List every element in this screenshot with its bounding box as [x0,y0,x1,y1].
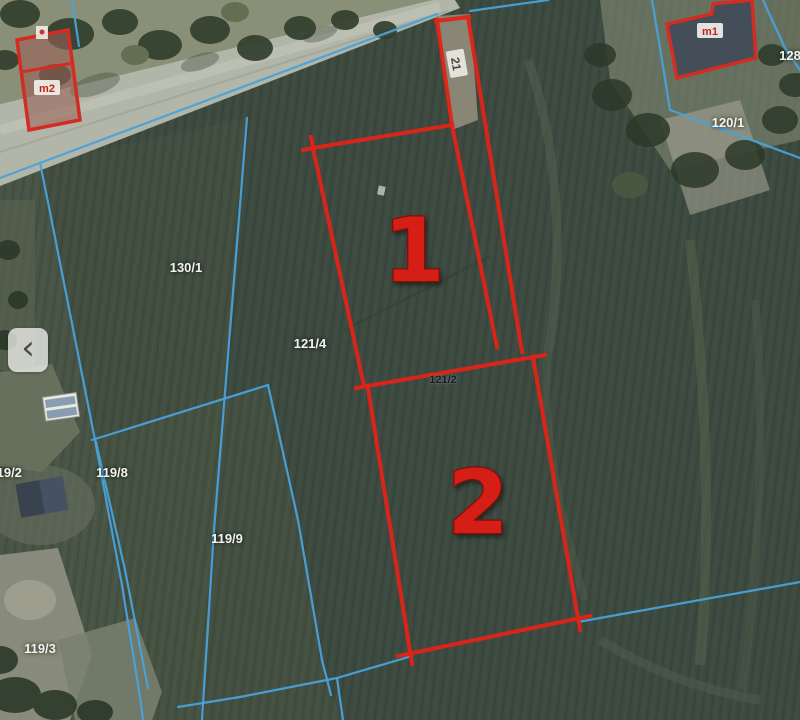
parcel-label-121-4: 121/4 [294,336,327,351]
building-left-label: m2 [39,83,55,95]
shed-structure [42,393,79,421]
parcel-1-number: 1 [383,199,444,302]
parcel-label-119-9: 119/9 [211,531,243,546]
building-left: m2 [17,26,80,130]
svg-text:21: 21 [448,56,464,72]
parcel-label-130-1: 130/1 [170,260,203,275]
divider-parcel-label: 121/2 [429,374,457,386]
building-right-label: m1 [702,26,718,38]
back-button[interactable]: ‹ [8,328,48,372]
parcel-label-119-3: 119/3 [24,641,56,656]
parcel-label-119-2: 119/2 [0,465,22,480]
parcel-2-number: 2 [447,451,508,554]
map-canvas[interactable]: m2 m1 21 [0,0,800,720]
parcel-label-128: 128 [779,48,800,63]
parcel-label-120-1: 120/1 [712,115,745,130]
satellite-map-view: m2 m1 21 [0,0,800,720]
chevron-left-icon: ‹ [21,331,35,365]
parcel-label-119-8: 119/8 [96,465,128,480]
